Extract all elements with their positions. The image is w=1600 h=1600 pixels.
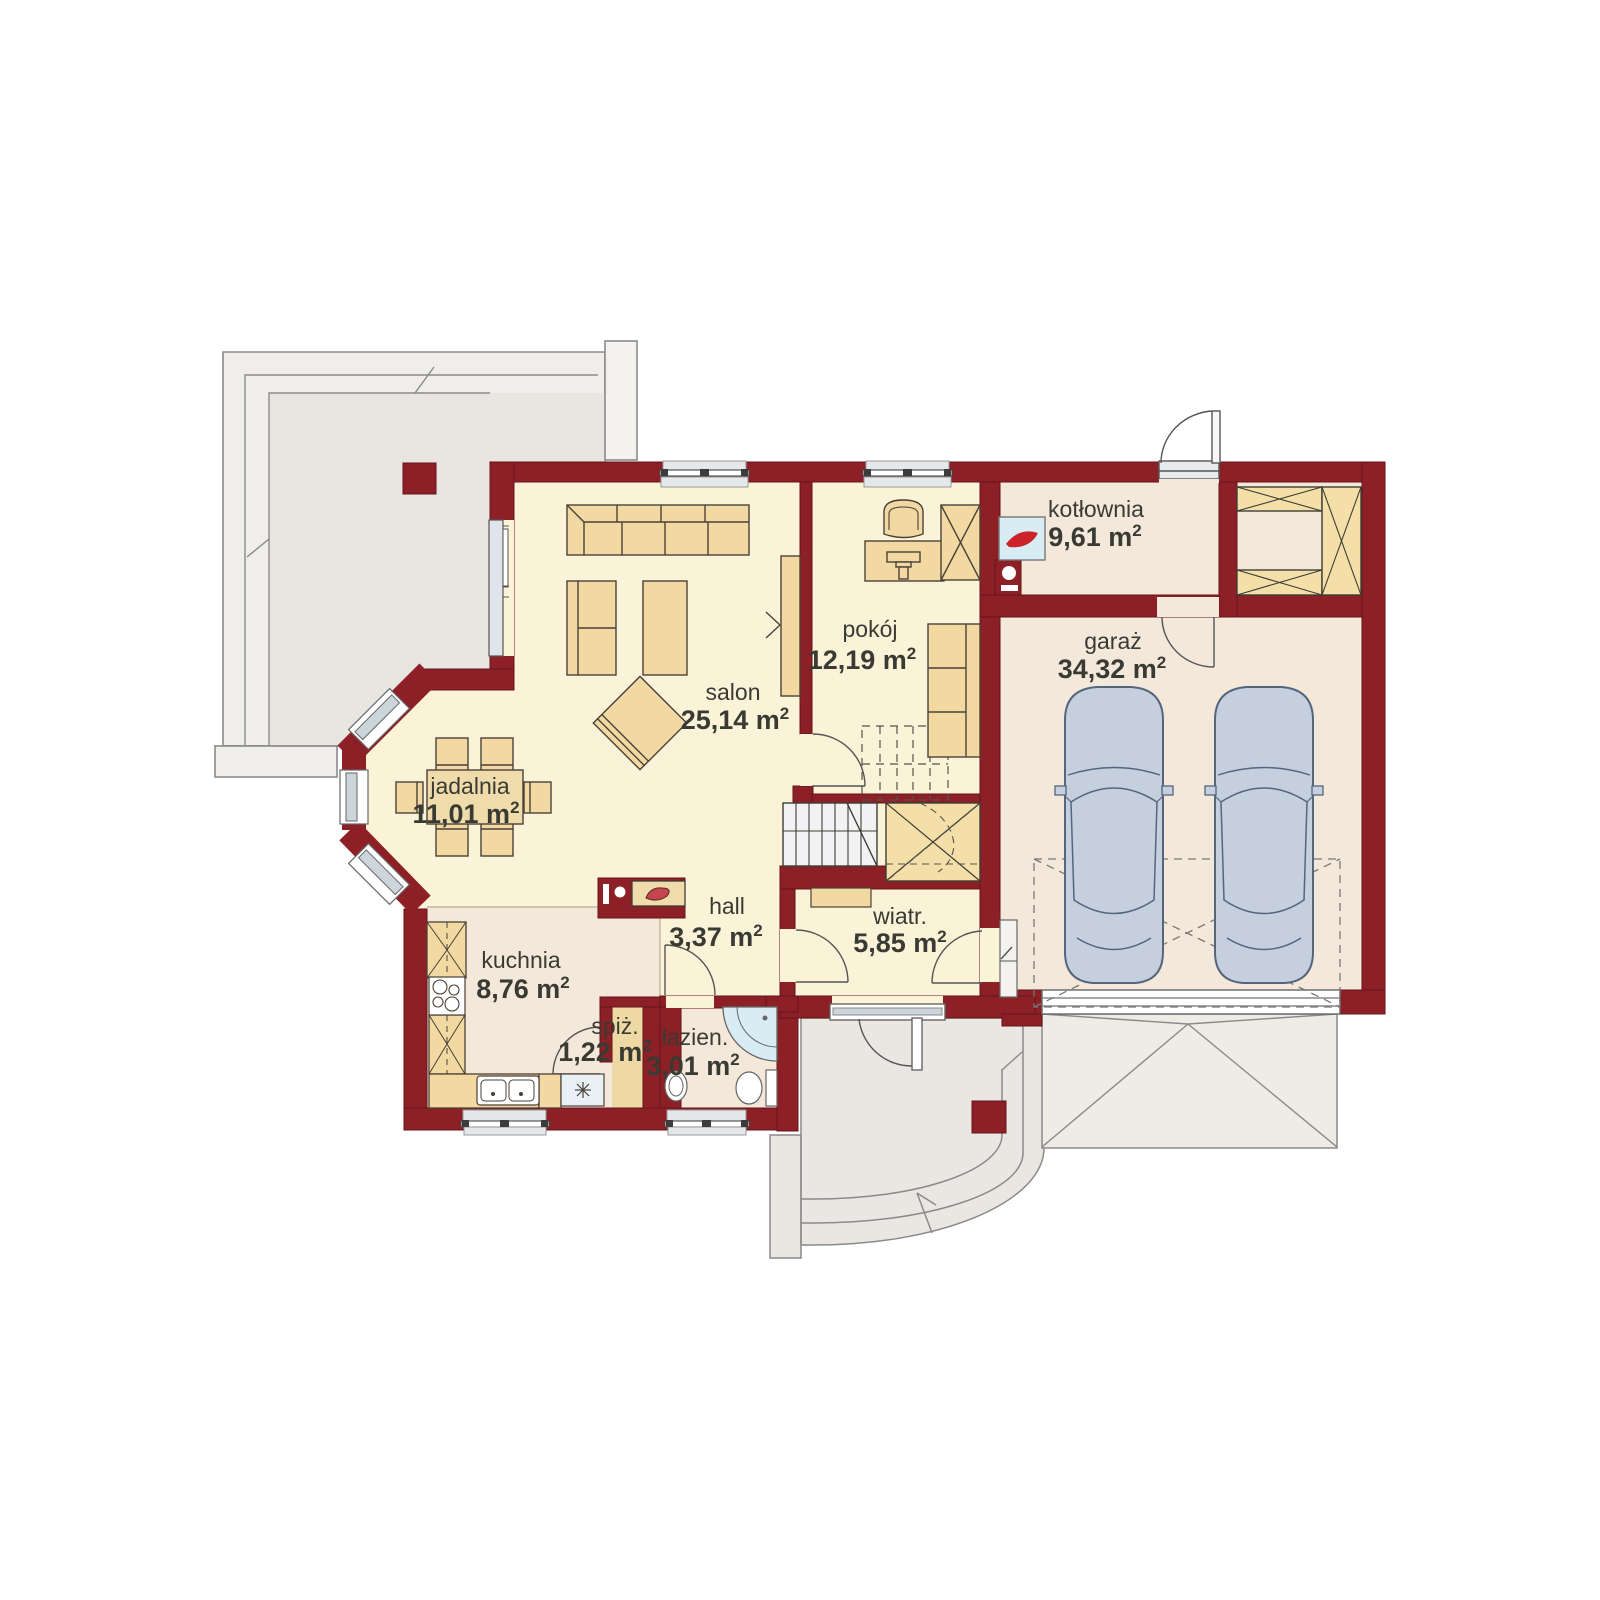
svg-text:spiż.: spiż. xyxy=(591,1013,638,1039)
svg-text:1,22 m2: 1,22 m2 xyxy=(558,1036,652,1067)
svg-text:5,85 m2: 5,85 m2 xyxy=(853,927,947,958)
svg-text:3,37 m2: 3,37 m2 xyxy=(669,921,763,952)
svg-text:34,32 m2: 34,32 m2 xyxy=(1058,653,1167,684)
svg-text:wiatr.: wiatr. xyxy=(872,903,927,929)
svg-text:salon: salon xyxy=(706,679,761,705)
svg-text:pokój: pokój xyxy=(843,616,898,642)
svg-text:kuchnia: kuchnia xyxy=(481,947,560,973)
svg-text:12,19 m2: 12,19 m2 xyxy=(808,644,917,675)
svg-text:25,14 m2: 25,14 m2 xyxy=(681,704,790,735)
svg-text:jadalnia: jadalnia xyxy=(429,773,509,799)
svg-text:hall: hall xyxy=(709,893,745,919)
svg-text:kotłownia: kotłownia xyxy=(1048,496,1144,522)
svg-text:3,01 m2: 3,01 m2 xyxy=(646,1050,740,1081)
svg-text:11,01 m2: 11,01 m2 xyxy=(412,798,519,829)
svg-text:9,61 m2: 9,61 m2 xyxy=(1048,521,1142,552)
svg-text:garaż: garaż xyxy=(1084,628,1142,654)
svg-text:łazien.: łazien. xyxy=(662,1024,728,1050)
svg-text:8,76 m2: 8,76 m2 xyxy=(476,973,570,1004)
